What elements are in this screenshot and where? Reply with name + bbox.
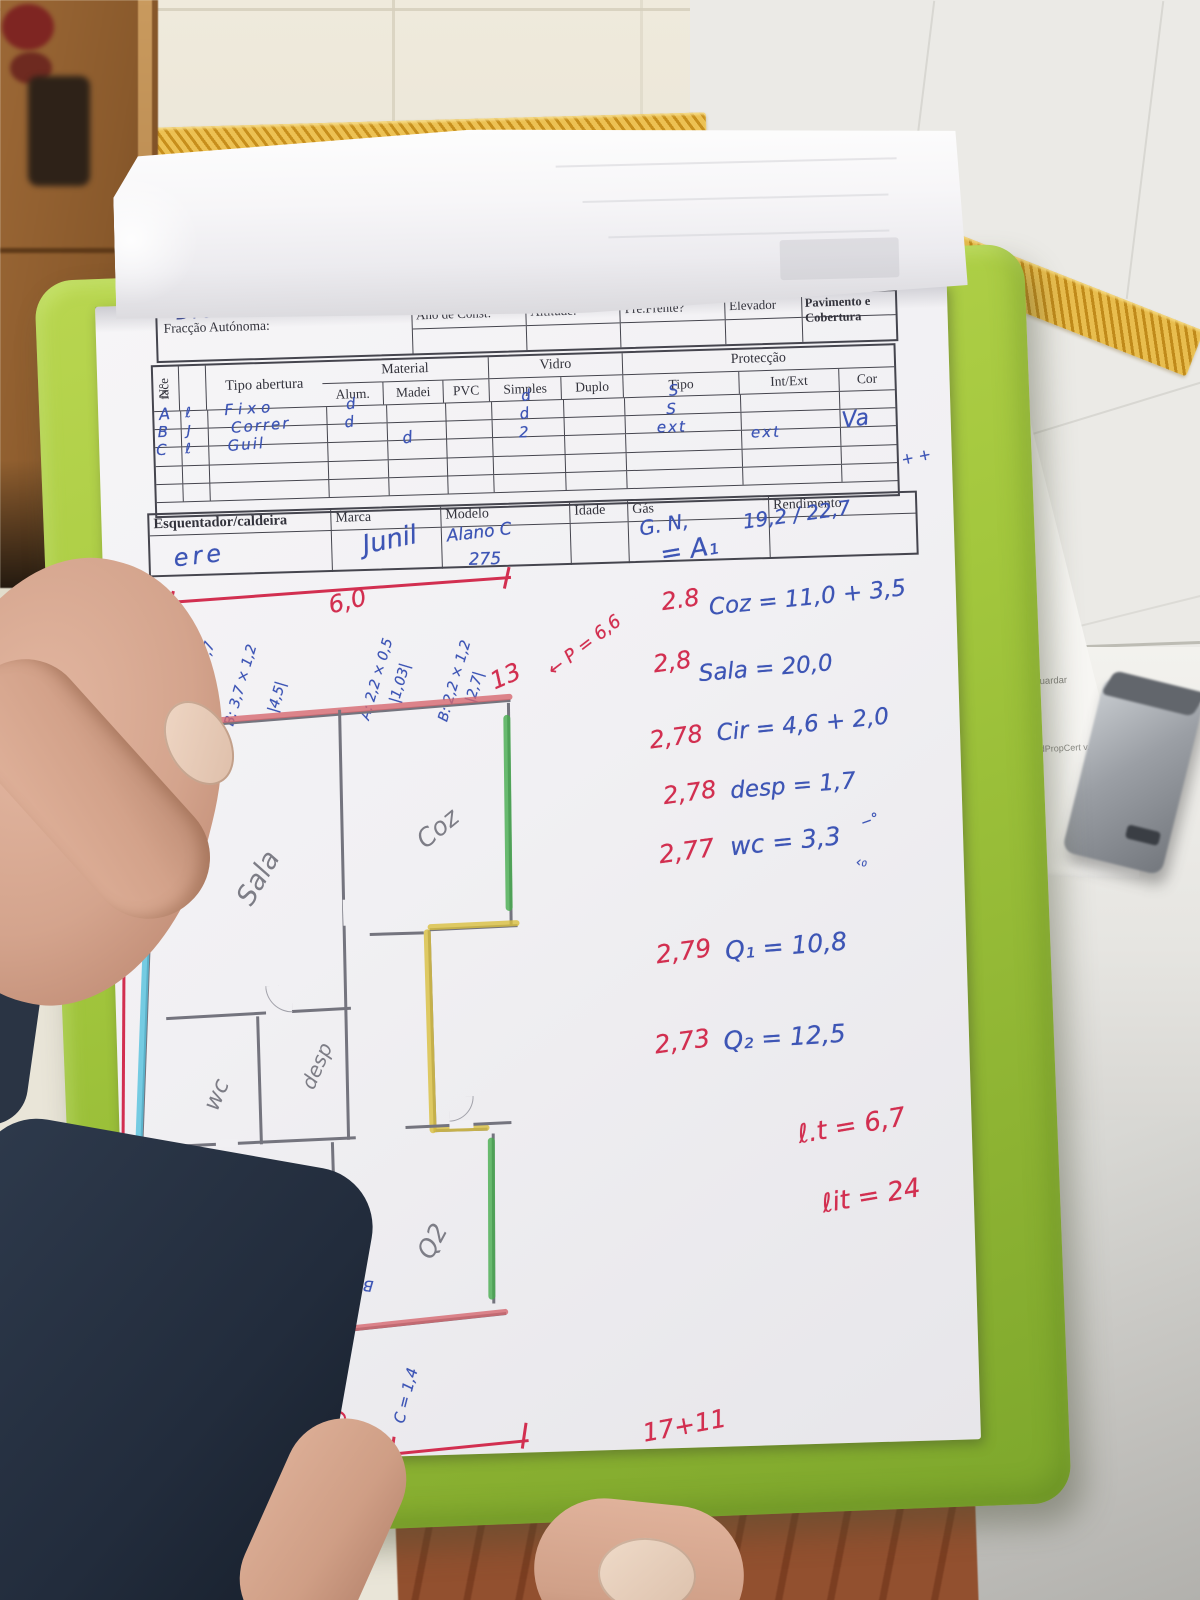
calc-body: Q₁ = 10,8 [724, 926, 848, 965]
hw-cell: B [157, 423, 168, 441]
table-cell [388, 476, 448, 495]
subcol-madei: Madei [382, 381, 443, 405]
table-cell [740, 392, 840, 412]
calc-body: Q₂ = 12,5 [723, 1019, 847, 1056]
table-cell [493, 473, 565, 492]
calc-pre: 2,79 [654, 933, 713, 969]
calc-pre: 2,73 [653, 1023, 712, 1059]
calc-pre: 2.8 [660, 583, 702, 616]
calc-pre: 2,78 [648, 720, 705, 755]
see-through-line [556, 157, 897, 167]
table-cell [180, 411, 207, 429]
hw-cell: Guil [227, 434, 266, 455]
hw-cell: 2 [519, 423, 529, 441]
hw-cell: d [343, 412, 355, 431]
hw-cell: ℓ [185, 405, 191, 421]
room-label-q2: Q2 [411, 1219, 453, 1264]
table-cell [328, 460, 388, 479]
table-cell [208, 443, 328, 464]
bottle [28, 76, 90, 186]
table-cell [183, 502, 210, 503]
hw-cell: J [187, 423, 192, 439]
dim-text-red: 17+11 [640, 1404, 728, 1448]
table-cell [157, 502, 183, 503]
table-cell [570, 522, 629, 565]
hw-heater-tipo: ere [172, 539, 226, 573]
door-gap [343, 900, 350, 926]
door-arc [265, 985, 293, 1013]
table-cell [741, 446, 841, 466]
dim-tick [521, 1423, 527, 1449]
door-gap [216, 1139, 238, 1148]
green-crayon-lower [488, 1138, 496, 1300]
table-cell [564, 453, 626, 472]
table-cell [565, 471, 627, 490]
col-face: face [178, 366, 206, 411]
table-cell [387, 458, 447, 477]
yellow-crayon-h1 [427, 920, 519, 930]
table-cell [563, 416, 625, 435]
table-cell [327, 423, 387, 442]
calc-wc-mark: −° [858, 810, 881, 831]
calc-pre: 2,78 [661, 775, 718, 810]
room-label-desp: desp [296, 1039, 337, 1093]
see-through-line [582, 193, 889, 202]
phone-slot [1125, 824, 1161, 846]
table-cell [386, 404, 446, 423]
table-cell [493, 455, 565, 474]
col-tipo-label: Tipo abertura [206, 362, 323, 395]
group-vidro: Vidro [488, 353, 623, 378]
subcol-pvc: PVC [442, 379, 489, 402]
hw-cell: S [667, 381, 679, 400]
table-cell [563, 398, 625, 417]
calc-pre: 2,8 [651, 645, 693, 678]
calc-total: ℓit = 24 [820, 1173, 923, 1219]
hw-cell: ext [657, 417, 688, 436]
hw-cell: C [156, 441, 167, 459]
field-pavimento: Pavimento e Cobertura [800, 291, 896, 342]
subcol-tipo: Tipo [622, 372, 739, 397]
calc-body: Sala = 20,0 [698, 650, 834, 687]
plan-coz-bottom [370, 931, 424, 935]
calc-body: Cir = 4,6 + 2,0 [716, 703, 891, 746]
door-arc [449, 1096, 475, 1122]
heater-col: Idade [569, 501, 628, 523]
table-cell [209, 480, 329, 501]
col-face-label: face [156, 378, 173, 400]
table-cell [328, 478, 388, 497]
subcol-intext: Int/Ext [738, 369, 839, 394]
table-cell [742, 465, 842, 485]
table-cell [182, 465, 209, 483]
table-cell [156, 484, 182, 502]
plan-wc-desp-divider [256, 1016, 262, 1144]
table-cell [627, 468, 743, 489]
table-cell [208, 462, 328, 483]
calc-total: ℓ.t = 6,7 [795, 1102, 907, 1150]
hw-cor-note: Va [840, 405, 870, 433]
tile-grout-vertical [1126, 1, 1165, 299]
table-cell [182, 483, 209, 501]
green-crayon-upper [503, 715, 512, 911]
hw-cell: ℓ [185, 441, 191, 457]
see-through-stamp [779, 237, 899, 280]
kitchen-photo-scene: 3 5 50 entos guardar MobiDedPropCert v.3… [0, 0, 1200, 1600]
table-cell [626, 449, 742, 470]
hw-cell: d [345, 394, 357, 413]
hw-cell: S [666, 400, 676, 418]
see-through-line [609, 229, 890, 237]
dim-text: |1,03| [387, 661, 414, 704]
yellow-crayon-v [424, 929, 437, 1133]
table-cell [156, 466, 182, 484]
dim-text: |4,5| [265, 680, 289, 715]
table-cell [448, 475, 494, 494]
dim-text-red: ← P = 6,6 [544, 611, 626, 681]
table-cell [841, 463, 897, 482]
dim-text-red: 13 [486, 657, 525, 695]
table-cell [447, 439, 493, 458]
calc-body: desp = 1,7 [729, 768, 857, 804]
curled-page [112, 118, 968, 325]
table-cell [387, 440, 447, 459]
room-label-sala: Sala [231, 845, 287, 910]
subcol-cor: Cor [838, 367, 895, 391]
table-cell [564, 435, 626, 454]
table-cell [448, 493, 494, 494]
calc-body: wc = 3,3 [729, 821, 842, 861]
subcol-duplo: Duplo [560, 375, 623, 399]
table-cell [447, 457, 493, 476]
calc-body: Coz = 11,0 + 3,5 [708, 575, 907, 621]
hw-cell: ext [751, 423, 782, 442]
curl-highlight [113, 174, 201, 306]
table-cell [624, 395, 740, 416]
hw-cell: A [158, 404, 171, 424]
dim-text-blue: C = 1,4 [390, 1366, 421, 1425]
calc-pre: 2,77 [657, 833, 716, 869]
room-label-wc: wc [199, 1075, 235, 1114]
room-label-coz: Coz [411, 802, 465, 854]
table-cell [445, 402, 491, 421]
table-cell [386, 422, 446, 441]
calc-wc-mark: ‹₀ [856, 854, 868, 870]
hw-heater-modelo2: 275 [468, 549, 501, 570]
table-cell [446, 420, 492, 439]
table-cell [327, 442, 387, 461]
table-cell [841, 445, 897, 464]
jar-lid [2, 4, 54, 50]
hw-side-note: + + [900, 445, 933, 469]
